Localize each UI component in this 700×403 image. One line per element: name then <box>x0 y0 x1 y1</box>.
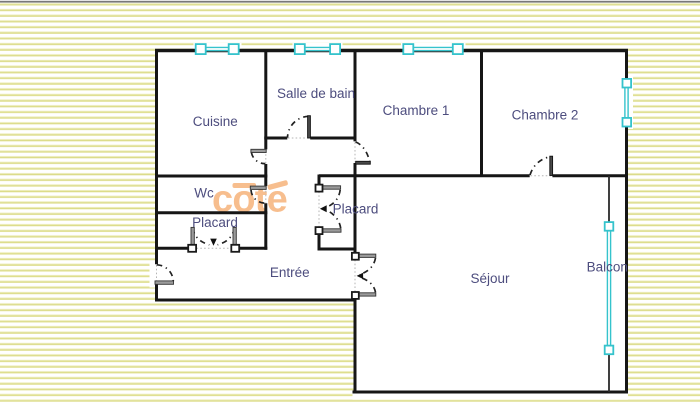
svg-text:Chambre 2: Chambre 2 <box>512 108 579 123</box>
svg-text:Wc: Wc <box>194 186 214 201</box>
svg-text:Placard: Placard <box>333 202 379 217</box>
svg-text:Placard: Placard <box>192 215 238 230</box>
svg-text:Entrée: Entrée <box>270 265 310 280</box>
svg-text:Chambre 1: Chambre 1 <box>383 103 450 118</box>
svg-text:Balcon: Balcon <box>587 260 628 275</box>
svg-text:Salle de bain: Salle de bain <box>277 86 355 101</box>
svg-text:Cuisine: Cuisine <box>193 114 238 129</box>
svg-text:Séjour: Séjour <box>470 271 510 286</box>
